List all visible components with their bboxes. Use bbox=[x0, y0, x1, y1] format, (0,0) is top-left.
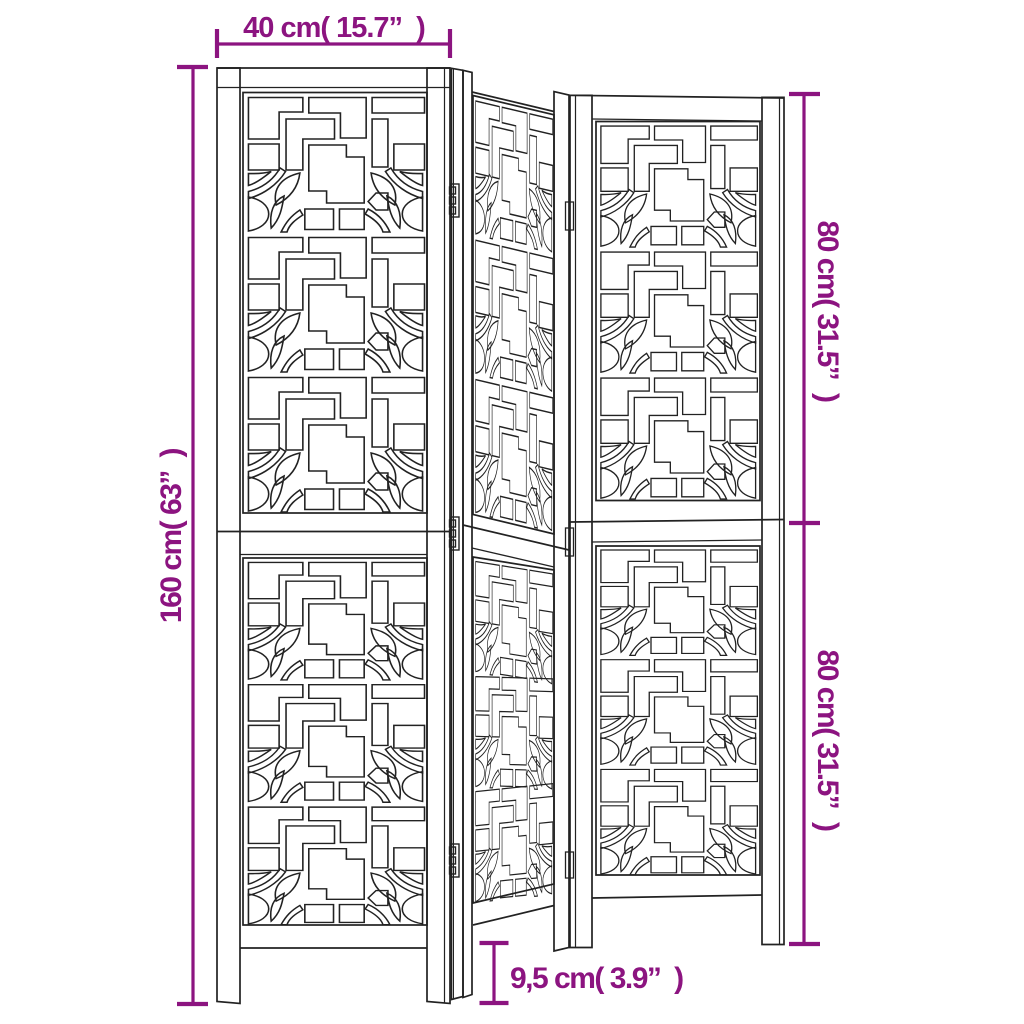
svg-text:80 cm( 31.5” ): 80 cm( 31.5” ) bbox=[811, 650, 844, 831]
svg-text:9,5 cm( 3.9” ): 9,5 cm( 3.9” ) bbox=[510, 962, 683, 995]
svg-text:160 cm( 63” ): 160 cm( 63” ) bbox=[155, 448, 188, 623]
svg-text:80 cm( 31.5” ): 80 cm( 31.5” ) bbox=[811, 221, 844, 402]
svg-text:40 cm( 15.7” ): 40 cm( 15.7” ) bbox=[243, 12, 425, 44]
